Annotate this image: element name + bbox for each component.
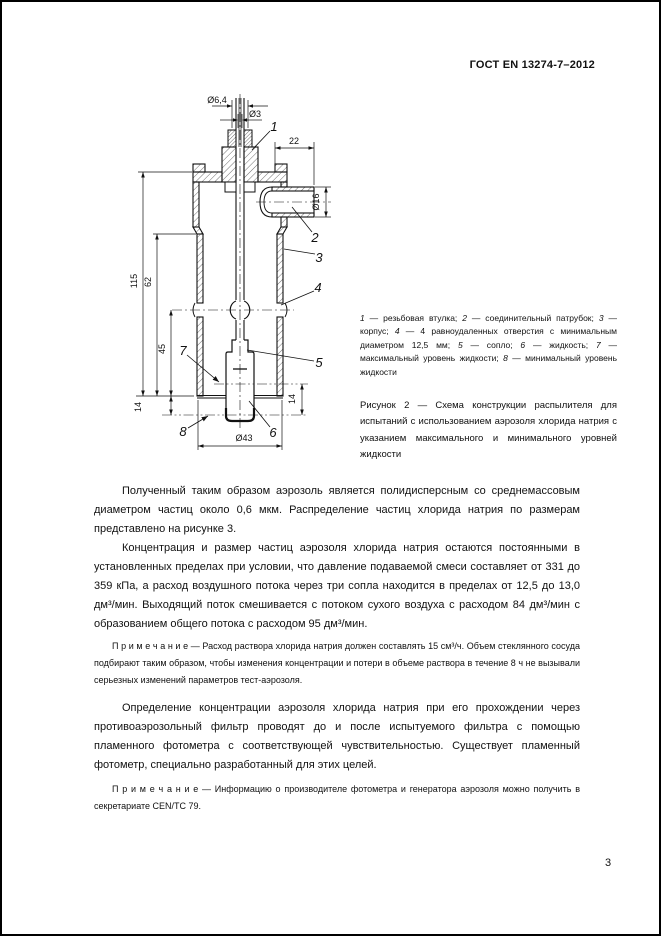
note-label: П р и м е ч а н и е: [112, 641, 188, 651]
dim-d43: Ø43: [235, 433, 252, 443]
sprayer-diagram: Ø6,4 Ø3 22 Ø16 115 62 45 14 14 Ø43 1 2 3: [128, 90, 334, 456]
page-number: 3: [605, 857, 611, 869]
callout-6: 6: [269, 425, 277, 440]
callout-7: 7: [179, 343, 187, 358]
note-label: П р и м е ч а н и е: [112, 784, 198, 794]
figure-caption: Рисунок 2 — Схема конструкции распылител…: [360, 398, 617, 464]
paragraph-concentration-limits: Концентрация и размер частиц аэрозоля хл…: [94, 539, 580, 634]
figure-legend: 1 — резьбовая втулка; 2 — соединительный…: [360, 312, 617, 379]
callout-5: 5: [315, 355, 323, 370]
callout-8: 8: [179, 424, 187, 439]
paragraph-photometer: Определение концентрации аэрозоля хлорид…: [94, 699, 580, 775]
document-header: ГОСТ EN 13274-7–2012: [470, 59, 595, 71]
callout-1: 1: [270, 119, 277, 134]
paragraph-aerosol-diameter: Полученный таким образом аэрозоль являет…: [94, 482, 580, 539]
dim-d16: Ø16: [311, 193, 321, 210]
note-cen-tc79: П р и м е ч а н и е — Информацию о произ…: [94, 781, 580, 815]
callout-4: 4: [314, 280, 321, 295]
figure-caption-label: Рисунок 2: [360, 400, 409, 411]
dim-115: 115: [129, 274, 139, 288]
dim-14-right: 14: [287, 394, 297, 404]
callout-3: 3: [315, 250, 323, 265]
dim-22: 22: [289, 136, 299, 146]
dim-45: 45: [157, 344, 167, 354]
dim-d3: Ø3: [249, 109, 261, 119]
dim-62: 62: [143, 277, 153, 287]
dim-d64: Ø6,4: [207, 95, 227, 105]
dim-14-left: 14: [133, 402, 143, 412]
callout-2: 2: [310, 230, 319, 245]
document-page: ГОСТ EN 13274-7–2012: [0, 0, 661, 936]
note-solution-flow: П р и м е ч а н и е — Расход раствора хл…: [94, 638, 580, 689]
